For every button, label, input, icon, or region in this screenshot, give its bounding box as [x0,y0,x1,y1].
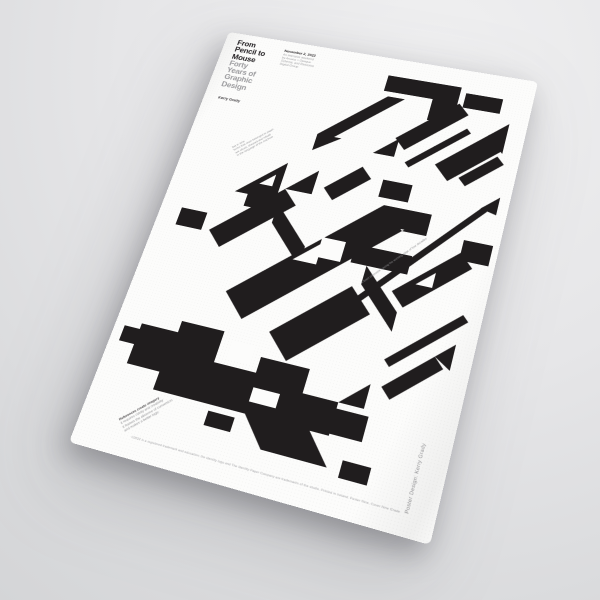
poster-sheet: From Pencil to Mouse Forty Years of Grap… [69,32,538,545]
artwork-shape [379,347,446,411]
artwork-shape [329,409,368,443]
artwork-shape [463,93,504,114]
poster: From Pencil to Mouse Forty Years of Grap… [69,32,538,545]
artwork-shape [378,180,412,203]
artwork-shape [338,460,371,485]
artwork-shape [285,166,319,195]
studio-backdrop: From Pencil to Mouse Forty Years of Grap… [0,0,600,600]
artwork-shape [203,411,234,433]
poster-shadow: From Pencil to Mouse Forty Years of Grap… [0,0,340,480]
artwork-shape [312,134,341,155]
artwork-shape [373,135,399,157]
artwork-shape [321,161,375,206]
artwork-shape [175,207,207,230]
poster-artwork [69,32,538,545]
artwork-shape [338,378,370,409]
artwork-shape [226,341,256,364]
